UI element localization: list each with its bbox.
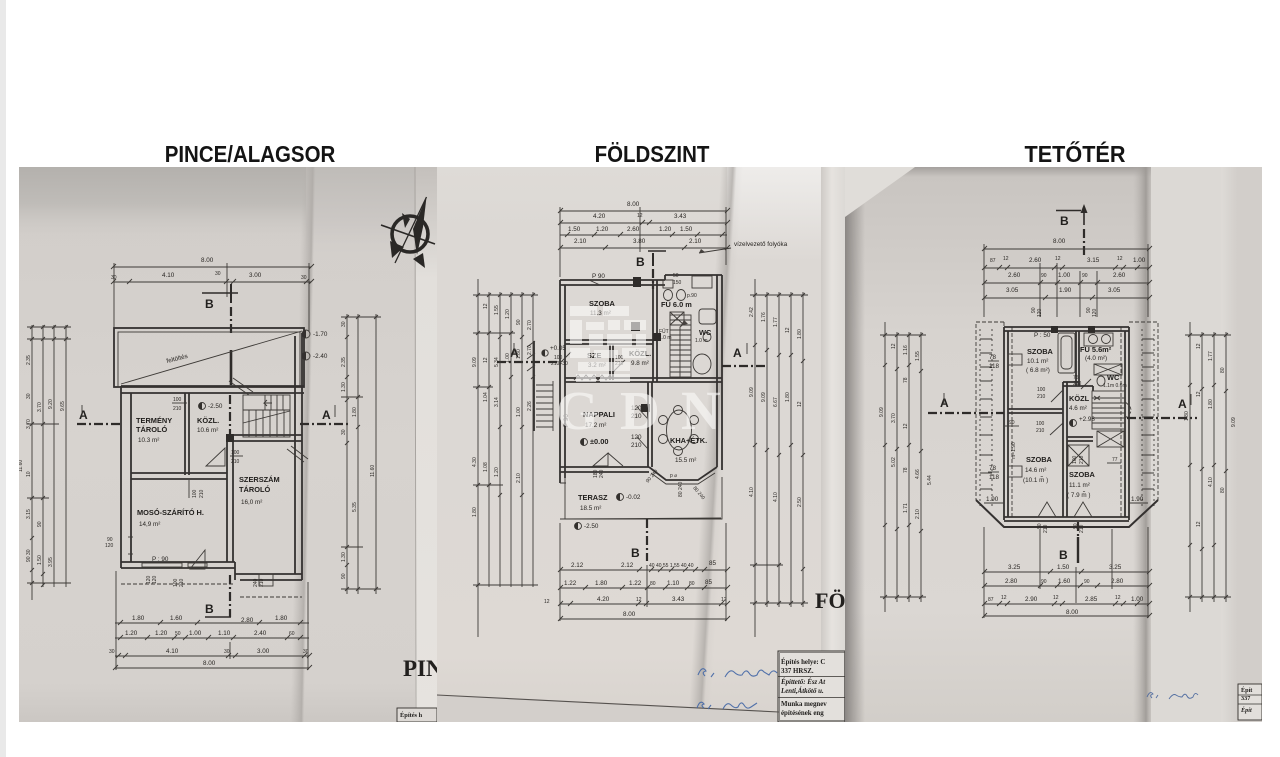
svg-text:1.00: 1.00	[516, 407, 522, 417]
svg-text:(4.0 m²): (4.0 m²)	[1085, 355, 1107, 362]
svg-text:2.10: 2.10	[574, 238, 587, 245]
svg-text:1.20: 1.20	[596, 226, 609, 233]
svg-text:8.00: 8.00	[201, 257, 214, 264]
svg-text:1.55: 1.55	[915, 351, 921, 361]
svg-text:TERMÉNY: TERMÉNY	[136, 416, 172, 425]
svg-text:30: 30	[224, 649, 230, 655]
svg-text:240: 240	[599, 469, 605, 478]
svg-text:10.6 m²: 10.6 m²	[197, 427, 218, 434]
svg-text:12: 12	[1196, 343, 1202, 349]
svg-text:210: 210	[1037, 394, 1046, 400]
svg-text:9.09: 9.09	[1231, 417, 1237, 427]
svg-text:1.20: 1.20	[155, 630, 168, 637]
svg-text:2.42: 2.42	[749, 307, 755, 317]
svg-text:p.90: p.90	[687, 293, 697, 299]
svg-text:9.8 m²: 9.8 m²	[631, 360, 649, 367]
svg-text:78: 78	[989, 354, 997, 361]
svg-text:12: 12	[1117, 256, 1123, 262]
svg-text:30: 30	[109, 649, 115, 655]
svg-text:90: 90	[1082, 273, 1088, 279]
svg-text:9.09: 9.09	[472, 357, 478, 367]
svg-text:1.22: 1.22	[564, 580, 577, 587]
svg-text:építésének eng: építésének eng	[781, 710, 824, 717]
svg-text:9.09: 9.09	[879, 407, 885, 417]
svg-text:1.80: 1.80	[516, 349, 522, 359]
svg-text:10: 10	[26, 471, 32, 477]
svg-text:118: 118	[989, 474, 1000, 481]
svg-text:8.00: 8.00	[1066, 609, 1079, 616]
svg-text:5.35: 5.35	[352, 502, 358, 512]
svg-text:2.10: 2.10	[516, 473, 522, 483]
svg-text:p ⌀: p ⌀	[670, 473, 677, 479]
svg-text:90: 90	[516, 319, 522, 325]
svg-text:12: 12	[1053, 595, 1059, 601]
svg-text:1.00: 1.00	[1058, 272, 1071, 279]
svg-text:2.70: 2.70	[527, 345, 533, 355]
svg-text:2.60: 2.60	[1113, 272, 1126, 279]
svg-text:1.80: 1.80	[472, 507, 478, 517]
svg-text:FÜ 5.6m²: FÜ 5.6m²	[1080, 345, 1112, 354]
svg-text:87: 87	[990, 258, 996, 264]
svg-text:118: 118	[989, 363, 1000, 370]
svg-text:12: 12	[797, 401, 803, 407]
svg-text:3.25: 3.25	[1008, 564, 1021, 571]
svg-text:12: 12	[483, 303, 489, 309]
svg-text:3.05: 3.05	[1108, 287, 1121, 294]
svg-text:80: 80	[650, 581, 656, 587]
svg-text:30: 30	[26, 393, 32, 399]
svg-text:2.60: 2.60	[627, 226, 640, 233]
svg-text:100: 100	[173, 397, 182, 403]
svg-text:TÁROLÓ: TÁROLÓ	[136, 425, 167, 434]
svg-text:80: 80	[1220, 487, 1226, 493]
svg-text:4.10: 4.10	[166, 648, 179, 655]
svg-text:100: 100	[1036, 421, 1045, 427]
svg-text:1.22: 1.22	[629, 580, 642, 587]
svg-text:30: 30	[341, 429, 347, 435]
svg-text:SZOBA: SZOBA	[1069, 470, 1096, 479]
svg-text:3.05: 3.05	[1006, 287, 1019, 294]
svg-text:1.80: 1.80	[1208, 399, 1214, 409]
svg-text:1.71: 1.71	[903, 503, 909, 513]
svg-text:120: 120	[1092, 308, 1098, 317]
svg-text:SZOBA: SZOBA	[1027, 347, 1054, 356]
svg-text:3.43: 3.43	[672, 596, 685, 603]
svg-text:2.60: 2.60	[1029, 257, 1042, 264]
svg-text:1.77: 1.77	[1208, 351, 1214, 361]
svg-text:1.80: 1.80	[132, 615, 145, 622]
svg-text:3.95: 3.95	[48, 557, 54, 567]
svg-text:100: 100	[231, 450, 240, 456]
svg-text:-2.50: -2.50	[208, 403, 223, 410]
svg-text:PIN: PIN	[403, 656, 437, 681]
svg-text:B: B	[631, 546, 640, 560]
svg-text:50: 50	[175, 631, 181, 637]
svg-text:KÖZL: KÖZL	[1069, 394, 1090, 403]
svg-text:1.20: 1.20	[125, 630, 138, 637]
svg-text:210: 210	[179, 578, 185, 587]
svg-text:1.76: 1.76	[761, 312, 767, 322]
svg-text:KÖZL.: KÖZL.	[197, 416, 219, 425]
svg-text:FÜ 6.0 m: FÜ 6.0 m	[661, 300, 692, 309]
svg-text:2.35: 2.35	[341, 357, 347, 367]
svg-text:120: 120	[105, 543, 114, 549]
svg-text:1.00: 1.00	[1131, 596, 1144, 603]
svg-text:12: 12	[1115, 595, 1121, 601]
svg-text:1.10: 1.10	[667, 580, 680, 587]
svg-text:12: 12	[483, 357, 489, 363]
svg-text:1.50: 1.50	[680, 226, 693, 233]
svg-text:Építés helye: C: Építés helye: C	[781, 658, 825, 666]
svg-text:12: 12	[1196, 391, 1202, 397]
svg-text:210: 210	[1036, 428, 1045, 434]
svg-text:150: 150	[673, 280, 682, 286]
svg-text:8.00: 8.00	[623, 611, 636, 618]
svg-text:4.30: 4.30	[472, 457, 478, 467]
svg-text:1.20: 1.20	[494, 467, 500, 477]
svg-text:14,9 m²: 14,9 m²	[139, 521, 160, 528]
svg-text:TERASZ: TERASZ	[578, 493, 608, 502]
svg-text:78: 78	[903, 467, 909, 473]
svg-text:1.90: 1.90	[1131, 496, 1144, 503]
svg-text:120: 120	[152, 575, 158, 584]
svg-text:14.6 m²: 14.6 m²	[1025, 467, 1046, 474]
svg-text:1.55: 1.55	[494, 305, 500, 315]
svg-text:8.00: 8.00	[203, 660, 216, 667]
svg-text:40 40 55 1.55 40 40: 40 40 55 1.55 40 40	[649, 563, 694, 569]
svg-text:Építtető: Ész At: Építtető: Ész At	[780, 678, 826, 686]
svg-text:80 240: 80 240	[678, 481, 684, 497]
svg-text:337: 337	[1241, 695, 1250, 702]
svg-text:vízelvezető folyóka: vízelvezető folyóka	[734, 241, 788, 248]
svg-text:2.40: 2.40	[254, 630, 267, 637]
svg-text:100: 100	[192, 489, 198, 498]
svg-text:2.26: 2.26	[527, 401, 533, 411]
svg-text:2.35: 2.35	[26, 355, 32, 365]
svg-text:90: 90	[1041, 579, 1047, 585]
svg-text:1.30: 1.30	[341, 552, 347, 562]
svg-text:100: 100	[1037, 387, 1046, 393]
svg-text:12: 12	[1055, 256, 1061, 262]
svg-text:B: B	[205, 297, 214, 311]
svg-text:9.09: 9.09	[749, 387, 755, 397]
svg-text:Építés h: Építés h	[400, 711, 423, 719]
svg-text:1.0 m: 1.0 m	[695, 338, 708, 344]
svg-text:A: A	[733, 346, 742, 360]
svg-text:9.65: 9.65	[60, 401, 66, 411]
svg-text:8.00: 8.00	[1053, 238, 1066, 245]
svg-text:B: B	[636, 255, 645, 269]
svg-text:+2.98: +2.98	[1079, 416, 1095, 423]
svg-text:4.10: 4.10	[1208, 477, 1214, 487]
svg-text:m=1.90: m=1.90	[1011, 442, 1017, 459]
svg-text:90 30: 90 30	[26, 549, 32, 562]
svg-text:12: 12	[1196, 521, 1202, 527]
svg-text:2.70: 2.70	[527, 320, 533, 330]
svg-text:11.1 m²: 11.1 m²	[1069, 482, 1090, 489]
svg-text:3.70: 3.70	[37, 402, 43, 412]
svg-text:Épít: Épít	[1240, 706, 1252, 714]
svg-text:12: 12	[1001, 595, 1007, 601]
svg-text:78: 78	[903, 377, 909, 383]
svg-text:1.80: 1.80	[352, 407, 358, 417]
svg-text:1.10: 1.10	[218, 630, 231, 637]
svg-text:12: 12	[891, 343, 897, 349]
svg-text:( 6.8 m²): ( 6.8 m²)	[1026, 367, 1050, 374]
svg-text:P 90: P 90	[592, 273, 605, 280]
svg-text:2.60: 2.60	[1008, 272, 1021, 279]
svg-text:90: 90	[1084, 579, 1090, 585]
svg-text:210: 210	[231, 459, 240, 465]
svg-text:12: 12	[1003, 256, 1009, 262]
svg-text:3.14: 3.14	[494, 397, 500, 407]
svg-text:210: 210	[1079, 524, 1085, 533]
svg-text:A: A	[322, 408, 331, 422]
svg-text:A: A	[1178, 397, 1187, 411]
svg-text:3.43: 3.43	[674, 213, 687, 220]
svg-text:2.80: 2.80	[1111, 578, 1124, 585]
svg-text:1.80: 1.80	[595, 580, 608, 587]
svg-text:12: 12	[544, 599, 550, 605]
svg-text:30: 30	[301, 275, 307, 281]
svg-text:1.50: 1.50	[1057, 564, 1070, 571]
svg-text:4.10: 4.10	[749, 487, 755, 497]
svg-text:50: 50	[673, 273, 679, 279]
svg-text:1.0 m: 1.0 m	[659, 335, 672, 341]
svg-text:1.50: 1.50	[37, 555, 43, 565]
svg-text:210: 210	[173, 406, 182, 412]
svg-text:MOSÓ-SZÁRÍTÓ H.: MOSÓ-SZÁRÍTÓ H.	[137, 508, 204, 517]
svg-text:4.10: 4.10	[162, 272, 175, 279]
svg-text:3.15: 3.15	[1087, 257, 1100, 264]
svg-text:210: 210	[1043, 524, 1049, 533]
svg-text:30: 30	[215, 271, 221, 277]
svg-text:2.10: 2.10	[915, 509, 921, 519]
svg-text:-1.70: -1.70	[313, 331, 328, 338]
svg-text:1.80: 1.80	[785, 392, 791, 402]
svg-text:1.00: 1.00	[505, 353, 511, 363]
svg-text:(10.1 m̃ ): (10.1 m̃ )	[1023, 476, 1048, 484]
svg-text:Épít: Épít	[1241, 686, 1253, 694]
svg-text:210: 210	[199, 489, 205, 498]
svg-text:15.5 m²: 15.5 m²	[675, 457, 696, 464]
svg-text:1.00: 1.00	[1133, 257, 1146, 264]
svg-text:5.34: 5.34	[494, 357, 500, 367]
svg-text:1.1m 0.6m: 1.1m 0.6m	[1103, 383, 1127, 389]
svg-text:SZOBA: SZOBA	[1026, 455, 1053, 464]
svg-text:2.10: 2.10	[689, 238, 702, 245]
svg-text:77: 77	[1112, 457, 1118, 463]
svg-text:1.60: 1.60	[170, 615, 183, 622]
svg-text:-2.40: -2.40	[313, 353, 328, 360]
svg-text:FŰT: FŰT	[659, 328, 669, 335]
svg-text:1.90: 1.90	[1059, 287, 1072, 294]
svg-text:3.25: 3.25	[1109, 564, 1122, 571]
svg-text:8.00: 8.00	[627, 201, 640, 208]
svg-text:120: 120	[1037, 308, 1043, 317]
svg-text:2.85: 2.85	[1085, 596, 1098, 603]
svg-text:11.60: 11.60	[19, 460, 24, 472]
svg-text:1.80: 1.80	[275, 615, 288, 622]
svg-text:18.5 m²: 18.5 m²	[580, 505, 601, 512]
svg-text:3.80: 3.80	[633, 238, 646, 245]
svg-text:6.67: 6.67	[773, 397, 779, 407]
svg-text:4.6 m²: 4.6 m²	[1069, 405, 1087, 412]
svg-text:80: 80	[1220, 367, 1226, 373]
svg-text:9.09: 9.09	[761, 392, 767, 402]
svg-text:4.66: 4.66	[915, 469, 921, 479]
svg-text:4.20: 4.20	[593, 213, 606, 220]
svg-text:B: B	[1060, 214, 1069, 228]
svg-text:1.80: 1.80	[1184, 411, 1190, 421]
svg-text:4.10: 4.10	[773, 492, 779, 502]
svg-text:1.80: 1.80	[797, 329, 803, 339]
svg-text:3.00: 3.00	[257, 648, 270, 655]
svg-text:337 HRSZ.: 337 HRSZ.	[781, 668, 814, 675]
svg-text:3.70: 3.70	[891, 413, 897, 423]
svg-text:2.12: 2.12	[571, 562, 584, 569]
svg-text:-2.50: -2.50	[584, 523, 599, 530]
svg-text:100: 100	[1072, 455, 1078, 464]
svg-text:4.20: 4.20	[597, 596, 610, 603]
svg-text:2.12: 2.12	[621, 562, 634, 569]
svg-text:1.04: 1.04	[483, 392, 489, 402]
svg-text:60: 60	[289, 631, 295, 637]
svg-text:Munka megnev: Munka megnev	[781, 701, 827, 708]
svg-text:90: 90	[341, 573, 347, 579]
svg-text:90: 90	[1041, 273, 1047, 279]
svg-text:P : 90: P : 90	[152, 556, 169, 563]
svg-text:SZERSZÁM: SZERSZÁM	[239, 475, 280, 484]
svg-text:FÖ: FÖ	[815, 588, 845, 613]
svg-text:1.08: 1.08	[483, 462, 489, 472]
svg-text:3.15: 3.15	[26, 509, 32, 519]
svg-text:+0.05: +0.05	[550, 345, 566, 352]
svg-text:WC: WC	[1107, 373, 1120, 382]
svg-text:3.00: 3.00	[249, 272, 262, 279]
svg-text:9.20: 9.20	[48, 399, 54, 409]
svg-text:1.00: 1.00	[189, 630, 202, 637]
svg-text:80: 80	[689, 581, 695, 587]
svg-text:1.90: 1.90	[986, 496, 999, 503]
svg-text:-0.02: -0.02	[626, 494, 641, 501]
svg-text:Lenti,Átkötő u.: Lenti,Átkötő u.	[780, 687, 824, 695]
svg-text:B: B	[1059, 548, 1068, 562]
svg-text:85: 85	[705, 579, 713, 586]
svg-text:1.77: 1.77	[773, 317, 779, 327]
svg-text:12: 12	[636, 597, 642, 603]
svg-text:30: 30	[341, 321, 347, 327]
svg-text:A: A	[79, 408, 88, 422]
svg-text:5.02: 5.02	[891, 457, 897, 467]
svg-text:TÁROLÓ: TÁROLÓ	[239, 485, 270, 494]
svg-text:1.20: 1.20	[505, 309, 511, 319]
svg-text:12: 12	[785, 327, 791, 333]
svg-text:10.3 m²: 10.3 m²	[138, 437, 159, 444]
svg-text:P : 50: P : 50	[1034, 332, 1051, 339]
svg-text:11.60: 11.60	[370, 465, 376, 477]
svg-text:87: 87	[988, 597, 994, 603]
svg-text:5.44: 5.44	[927, 475, 933, 485]
svg-text:2.80: 2.80	[1005, 578, 1018, 585]
svg-text:( 7.9 m̃ ): ( 7.9 m̃ )	[1067, 491, 1090, 499]
svg-text:A: A	[940, 396, 949, 410]
svg-text:2.50: 2.50	[797, 497, 803, 507]
svg-text:WC: WC	[699, 328, 712, 337]
svg-text:2.90: 2.90	[1025, 596, 1038, 603]
svg-text:1.30: 1.30	[341, 382, 347, 392]
svg-text:90: 90	[37, 521, 43, 527]
svg-text:2.80: 2.80	[241, 617, 254, 624]
svg-text:12: 12	[903, 423, 909, 429]
svg-text:210: 210	[631, 442, 642, 449]
svg-text:G: G	[556, 380, 599, 441]
svg-text:85: 85	[709, 560, 717, 567]
svg-text:1.60: 1.60	[1058, 578, 1071, 585]
svg-text:1.16: 1.16	[903, 345, 909, 355]
svg-text:N: N	[681, 380, 721, 441]
svg-text:78: 78	[989, 465, 997, 472]
svg-text:B: B	[205, 602, 214, 616]
svg-text:1.20: 1.20	[659, 226, 672, 233]
svg-text:D: D	[620, 380, 660, 441]
svg-text:16,0 m²: 16,0 m²	[241, 499, 262, 506]
svg-text:10.1 m²: 10.1 m²	[1027, 358, 1048, 365]
svg-text:90: 90	[1009, 420, 1015, 426]
svg-text:210: 210	[1079, 455, 1085, 464]
